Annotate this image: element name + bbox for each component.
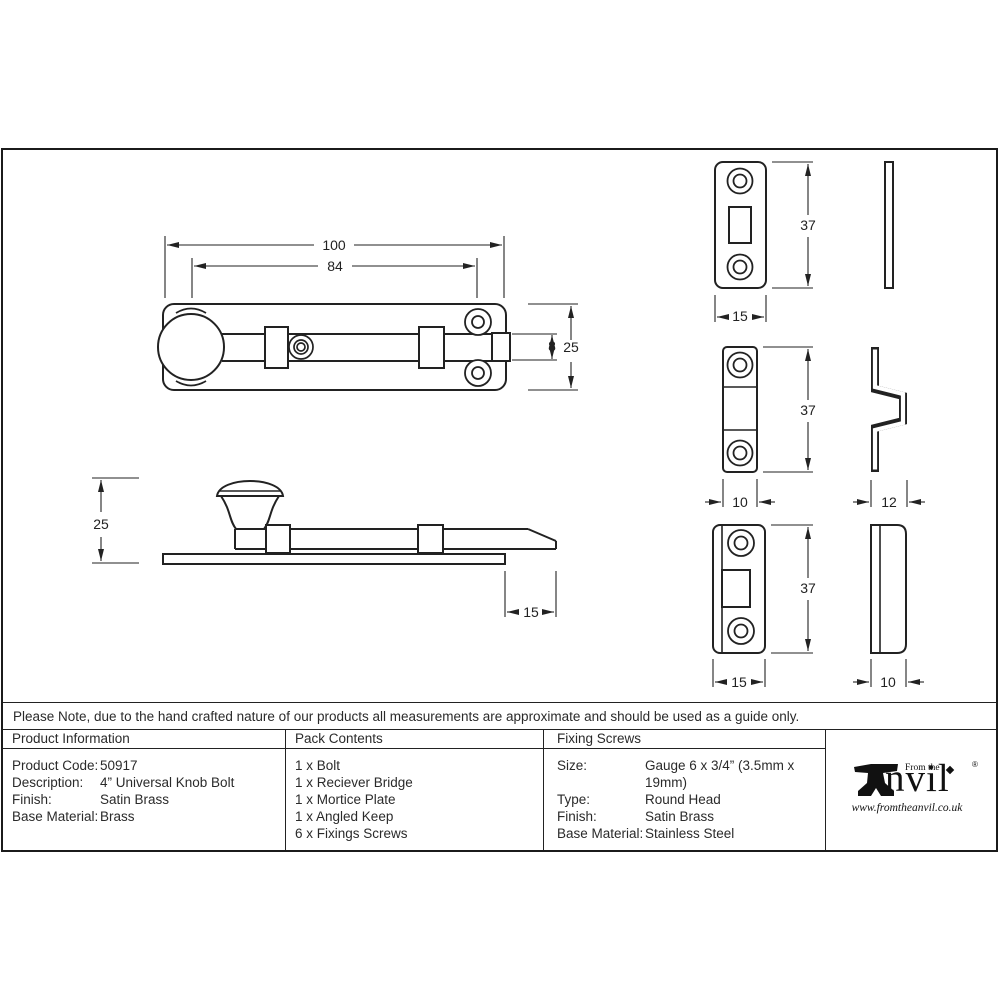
row-value: Gauge 6 x 3/4” (3.5mm x 19mm) [645,757,821,791]
pack-contents-header: Pack Contents [286,730,543,749]
row-label: Base Material: [557,825,645,842]
table-row: Type: Round Head [557,791,821,808]
fixing-screws-header: Fixing Screws [544,730,825,749]
table-row: Base Material: Brass [12,808,281,825]
product-information-column: Product Information Product Code: 50917 … [3,730,285,850]
row-value: 4” Universal Knob Bolt [100,774,234,791]
row-label: Description: [12,774,100,791]
row-label: Base Material: [12,808,100,825]
product-information-header: Product Information [3,730,285,749]
logo-wordmark: nvil [885,760,950,798]
list-item: 1 x Reciever Bridge [295,774,539,791]
table-row: Base Material: Stainless Steel [557,825,821,842]
list-item: 1 x Angled Keep [295,808,539,825]
list-item: 6 x Fixings Screws [295,825,539,842]
table-row: Finish: Satin Brass [557,808,821,825]
list-item: 1 x Mortice Plate [295,791,539,808]
fixing-screws-body: Size: Gauge 6 x 3/4” (3.5mm x 19mm) Type… [544,749,825,842]
table-row: Size: Gauge 6 x 3/4” (3.5mm x 19mm) [557,757,821,791]
product-spec-sheet: 100 84 [0,0,1000,1000]
spec-table: Product Information Product Code: 50917 … [3,730,996,850]
row-value: Stainless Steel [645,825,734,842]
table-row: Finish: Satin Brass [12,791,281,808]
disclaimer-row: Please Note, due to the hand crafted nat… [3,702,996,730]
row-label: Size: [557,757,645,791]
registered-trademark: ® [972,760,978,769]
row-label: Finish: [557,808,645,825]
row-value: Satin Brass [645,808,714,825]
sheet-frame: Please Note, due to the hand crafted nat… [1,148,998,852]
table-row: Product Code: 50917 [12,757,281,774]
pack-contents-column: Pack Contents 1 x Bolt 1 x Reciever Brid… [285,730,543,850]
pack-contents-body: 1 x Bolt 1 x Reciever Bridge 1 x Mortice… [286,749,543,842]
row-label: Product Code: [12,757,100,774]
row-value: Satin Brass [100,791,169,808]
row-label: Finish: [12,791,100,808]
brand-cell: From the nvil ® www.fromtheanvil.co.uk [825,730,996,850]
disclaimer-text: Please Note, due to the hand crafted nat… [13,709,799,724]
logo-url: www.fromtheanvil.co.uk [826,802,988,814]
row-label: Type: [557,791,645,808]
from-the-anvil-logo: From the nvil ® www.fromtheanvil.co.uk [826,730,996,850]
row-value: Brass [100,808,135,825]
fixing-screws-column: Fixing Screws Size: Gauge 6 x 3/4” (3.5m… [543,730,825,850]
product-information-body: Product Code: 50917 Description: 4” Univ… [3,749,285,825]
row-value: 50917 [100,757,138,774]
list-item: 1 x Bolt [295,757,539,774]
row-value: Round Head [645,791,721,808]
table-row: Description: 4” Universal Knob Bolt [12,774,281,791]
